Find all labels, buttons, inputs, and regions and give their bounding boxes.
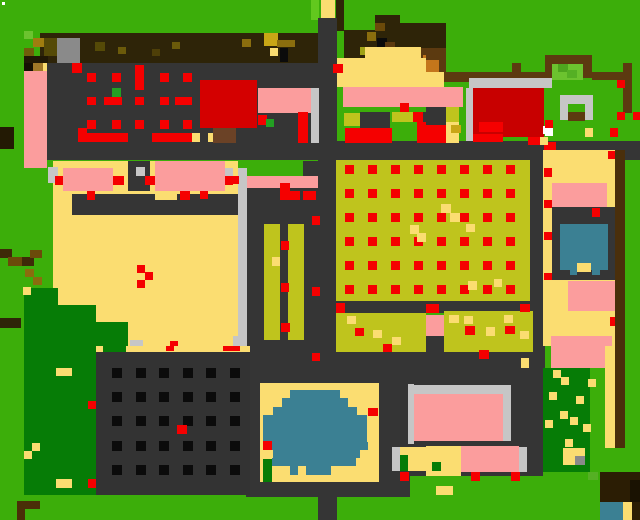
gold-pixel xyxy=(118,47,126,54)
market-dot xyxy=(87,120,96,129)
sand-notch xyxy=(577,263,591,272)
item-red xyxy=(465,326,475,335)
crop-berry xyxy=(391,261,400,270)
item-red xyxy=(368,408,378,416)
forest-west xyxy=(78,315,96,352)
crop-berry xyxy=(483,261,492,270)
crop-berry xyxy=(414,261,423,270)
gold-pixel xyxy=(33,63,43,71)
crop-berry xyxy=(483,189,492,198)
market-dot xyxy=(87,73,96,82)
crop-berry xyxy=(506,237,515,246)
arch-door xyxy=(568,112,585,121)
light-grass-pixel xyxy=(588,472,598,480)
wood-corner-sw xyxy=(17,501,40,509)
item-red xyxy=(413,112,423,122)
road-patch xyxy=(426,336,444,346)
pond-west-water xyxy=(273,450,360,458)
grass-south xyxy=(337,497,640,520)
crop-berry xyxy=(506,285,515,294)
building-frame xyxy=(414,385,511,394)
item-red xyxy=(281,283,289,292)
lot-dot xyxy=(230,416,240,426)
crop-berry xyxy=(345,165,354,174)
water-pixel xyxy=(570,268,577,275)
water-pixel xyxy=(592,268,600,275)
crop-berry xyxy=(391,237,400,246)
sand-north xyxy=(365,47,421,58)
item-red xyxy=(383,344,392,352)
red-column xyxy=(298,112,308,143)
dirt-bar-west xyxy=(0,318,21,328)
sand-speckle xyxy=(520,331,529,339)
item-red xyxy=(166,346,174,351)
road-patch xyxy=(360,112,390,128)
sand-speckle xyxy=(494,279,502,287)
pink-shed xyxy=(426,315,444,336)
sand-notch xyxy=(155,194,177,200)
lot-dot xyxy=(159,441,169,451)
sand-speckle xyxy=(486,327,495,336)
stone-column xyxy=(311,88,319,143)
item-red xyxy=(290,191,300,200)
lot-dot xyxy=(206,441,216,451)
item-red xyxy=(479,350,489,359)
crop-berry xyxy=(506,189,515,198)
item-red xyxy=(230,176,239,184)
item-red xyxy=(505,326,515,334)
item-red xyxy=(544,168,552,177)
item-red xyxy=(610,128,618,137)
crop-berry xyxy=(437,189,446,198)
forest-west xyxy=(96,322,128,346)
sand-speckle xyxy=(504,315,513,323)
crop-berry xyxy=(414,165,423,174)
lot-dot xyxy=(136,416,146,426)
grass-south xyxy=(0,497,318,520)
sand-pixel xyxy=(32,443,40,451)
crop-berry xyxy=(368,261,377,270)
sand-column-east xyxy=(605,346,615,448)
lot-dot xyxy=(159,416,169,426)
olive-block xyxy=(392,112,414,122)
sand-pixel xyxy=(24,451,32,459)
market-dot xyxy=(160,120,169,129)
pink-pixel xyxy=(40,161,47,168)
item-red xyxy=(544,200,552,208)
sand-pixel xyxy=(272,257,280,266)
item-red xyxy=(592,208,600,217)
lot-dot xyxy=(206,368,216,378)
crop-berry xyxy=(437,213,446,222)
crop-berry xyxy=(506,261,515,270)
item-red xyxy=(177,425,187,434)
building-frame xyxy=(503,393,511,441)
item-red xyxy=(72,63,82,73)
grass-pixel xyxy=(24,31,33,39)
dock-brown xyxy=(632,502,640,520)
crop-berry xyxy=(483,213,492,222)
lot-dot xyxy=(112,392,122,402)
lot-dot xyxy=(183,465,193,475)
item-red xyxy=(617,80,625,88)
sand-pixel xyxy=(270,48,278,56)
gold-pixel xyxy=(152,49,160,56)
pond-west-water xyxy=(265,442,368,450)
item-red xyxy=(281,323,290,332)
stone-pixel xyxy=(225,168,233,176)
pond-west-water xyxy=(263,415,367,442)
black-pixel xyxy=(280,48,288,62)
item-red xyxy=(333,64,343,73)
pond-west-water xyxy=(290,390,340,398)
market-building-red xyxy=(200,80,257,128)
sand-speckle xyxy=(565,439,573,447)
crop-strip xyxy=(264,224,280,340)
lot-dot xyxy=(206,416,216,426)
crop-berry xyxy=(391,165,400,174)
item-red xyxy=(545,120,553,128)
market-dot xyxy=(87,97,96,105)
sand-speckle xyxy=(588,379,596,387)
gold-pixel xyxy=(95,42,105,51)
building-pink-large xyxy=(414,394,503,441)
crop-berry xyxy=(368,189,377,198)
path-brown xyxy=(623,63,632,113)
item-red xyxy=(520,304,530,312)
sand-speckle xyxy=(466,224,475,232)
market-dot xyxy=(112,120,121,129)
brown-pixel xyxy=(375,23,385,31)
crop-berry xyxy=(391,189,400,198)
pond-west-water xyxy=(282,398,348,407)
item-red xyxy=(145,272,153,280)
crop-berry xyxy=(391,213,400,222)
crop-berry xyxy=(368,237,377,246)
crop-berry xyxy=(437,285,446,294)
market-dot xyxy=(112,73,121,82)
gold-pixel xyxy=(242,39,251,47)
sand-patch xyxy=(426,72,444,87)
plant-green xyxy=(263,459,272,482)
gold-pixel xyxy=(451,125,461,133)
item-red xyxy=(180,191,190,200)
item-green xyxy=(266,119,274,127)
lot-dot xyxy=(230,465,240,475)
building-pink-east xyxy=(552,183,607,207)
sand-speckle xyxy=(576,396,584,404)
sand-pixel xyxy=(192,133,200,142)
red-stall xyxy=(426,125,446,143)
dark-block-west xyxy=(0,127,14,149)
item-red xyxy=(400,103,409,112)
sand-speckle xyxy=(549,392,557,400)
sand-speckle xyxy=(392,337,401,345)
market-dot xyxy=(135,97,144,105)
dirt-pole xyxy=(336,0,344,31)
market-dot-tall xyxy=(135,65,144,90)
sand-speckle xyxy=(373,330,382,338)
water-pixel xyxy=(272,458,281,466)
item-red xyxy=(263,441,272,450)
lot-dot xyxy=(206,465,216,475)
stall-frame xyxy=(519,447,527,472)
crop-berry xyxy=(460,213,469,222)
crop-berry xyxy=(345,213,354,222)
item-red xyxy=(113,176,124,185)
sand-north xyxy=(336,58,426,87)
crop-berry xyxy=(460,165,469,174)
sand-speckle xyxy=(449,315,459,323)
item-red xyxy=(87,191,95,200)
olive-block xyxy=(446,107,459,122)
pond-west-water xyxy=(278,458,356,466)
market-bar xyxy=(175,97,192,105)
road-patch xyxy=(426,107,446,125)
plant-green xyxy=(400,455,408,471)
crop-berry xyxy=(345,261,354,270)
item-green xyxy=(112,88,121,97)
crop-berry xyxy=(414,213,423,222)
lot-dot xyxy=(136,392,146,402)
item-red xyxy=(200,191,208,199)
lot-dot xyxy=(112,416,122,426)
red-stall xyxy=(345,128,362,143)
stone-arch xyxy=(560,95,593,104)
brown-crate xyxy=(213,128,236,143)
crop-berry xyxy=(414,189,423,198)
crop-berry xyxy=(460,237,469,246)
stone-arch xyxy=(585,104,593,120)
game-map-canvas[interactable] xyxy=(0,0,640,520)
crop-berry xyxy=(483,285,492,294)
sand-speckle xyxy=(468,281,477,290)
gold-block xyxy=(264,33,278,46)
orange-block xyxy=(426,60,439,72)
gray-block xyxy=(57,38,80,63)
lot-dot xyxy=(183,368,193,378)
sand-speckle xyxy=(464,316,473,324)
lot-dot xyxy=(112,441,122,451)
stone-path xyxy=(520,80,552,88)
white-marker xyxy=(2,2,5,5)
market-bar xyxy=(104,97,122,105)
lot-dot xyxy=(159,392,169,402)
gold-pixel xyxy=(33,38,44,47)
pond-west-water xyxy=(273,407,357,415)
item-red xyxy=(145,176,155,185)
sand-speckle xyxy=(570,417,578,425)
building-pink xyxy=(63,168,113,191)
dock-sand xyxy=(623,502,632,520)
crop-berry xyxy=(506,213,515,222)
twig-brown xyxy=(8,257,22,266)
lot-dot xyxy=(112,368,122,378)
crop-berry xyxy=(483,165,492,174)
lot-dot xyxy=(159,368,169,378)
sand-pixel xyxy=(585,128,593,137)
building-pink-west xyxy=(24,71,47,168)
market-dot xyxy=(135,120,144,129)
crop-berry xyxy=(345,189,354,198)
crop-berry xyxy=(391,285,400,294)
gold-pixel xyxy=(367,32,376,41)
item-red xyxy=(55,176,63,185)
market-dot xyxy=(183,73,192,82)
sand-bar xyxy=(56,479,72,488)
dock-dark xyxy=(630,480,640,503)
dock-water xyxy=(600,502,623,520)
sand-pixel xyxy=(23,287,31,295)
building-pink xyxy=(551,336,612,368)
sand-speckle xyxy=(583,424,591,432)
gold-pixel xyxy=(33,277,42,285)
lot-dot xyxy=(136,465,146,475)
item-red xyxy=(617,112,625,120)
item-red xyxy=(544,232,552,240)
stall-yellow xyxy=(426,446,461,476)
crop-berry xyxy=(437,165,446,174)
lot-dot xyxy=(112,465,122,475)
crop-berry xyxy=(437,237,446,246)
red-stall xyxy=(362,128,392,143)
red-bar xyxy=(78,128,87,142)
hedge-shade xyxy=(567,70,577,78)
item-red xyxy=(303,191,316,200)
sand-speckle xyxy=(347,316,356,324)
item-red xyxy=(280,183,290,200)
gold-pixel xyxy=(25,269,34,277)
market-dot xyxy=(183,120,192,129)
lot-dot xyxy=(230,392,240,402)
crop-berry xyxy=(345,285,354,294)
lot-dot xyxy=(136,441,146,451)
stall-pink xyxy=(461,446,519,472)
item-red xyxy=(137,265,145,273)
stone-arch xyxy=(560,104,568,120)
item-red xyxy=(137,280,145,288)
item-red xyxy=(471,472,480,481)
item-red xyxy=(336,303,345,313)
twig-brown xyxy=(30,250,42,258)
sand-speckle xyxy=(560,411,568,419)
item-red xyxy=(511,472,520,481)
crop-berry xyxy=(460,189,469,198)
crop-berry xyxy=(460,261,469,270)
building-pink xyxy=(568,281,616,311)
plant-green xyxy=(432,462,441,471)
item-red xyxy=(312,353,320,361)
crop-berry xyxy=(414,285,423,294)
stall-frame xyxy=(392,447,400,471)
pond-west-water xyxy=(306,466,331,475)
wood-corner-sw xyxy=(17,509,25,520)
red-detail xyxy=(479,122,503,132)
pond-west-water xyxy=(290,466,298,475)
lot-dot xyxy=(230,441,240,451)
building-pink xyxy=(155,161,225,191)
sand-pixel xyxy=(540,137,548,145)
red-bar xyxy=(87,133,128,142)
red-bar xyxy=(152,133,192,142)
item-red xyxy=(633,112,640,120)
crop-berry xyxy=(506,165,515,174)
olive-block xyxy=(344,113,361,126)
lot-dot xyxy=(183,441,193,451)
path-brown xyxy=(426,50,444,60)
sand-pixel xyxy=(521,358,529,368)
sand-speckle xyxy=(417,233,426,242)
item-red xyxy=(400,472,409,481)
sand-bar xyxy=(56,368,72,376)
building-pink xyxy=(258,88,311,113)
wood-fence-east xyxy=(615,150,625,448)
crop-berry xyxy=(368,285,377,294)
lot-dot xyxy=(206,392,216,402)
item-red xyxy=(281,241,289,250)
crop-berry xyxy=(368,165,377,174)
sand-speckle xyxy=(553,370,561,378)
gold-pixel xyxy=(277,40,295,47)
item-red xyxy=(312,287,320,296)
item-red xyxy=(223,346,240,351)
lot-dot xyxy=(183,392,193,402)
red-detail xyxy=(473,134,503,142)
lot-dot xyxy=(230,368,240,378)
crop-berry xyxy=(483,237,492,246)
lot-dot xyxy=(159,465,169,475)
crop-strip xyxy=(288,224,304,340)
light-grass-stripe xyxy=(311,0,319,20)
gold-pixel xyxy=(24,48,34,56)
sand-pixel xyxy=(436,486,453,495)
lot-dot xyxy=(136,368,146,378)
white-pixel xyxy=(545,128,553,136)
market-dot xyxy=(160,97,169,105)
gray-pixel xyxy=(575,456,585,465)
crop-berry xyxy=(345,237,354,246)
sand-speckle xyxy=(450,213,460,222)
path-brown xyxy=(583,63,592,78)
item-red xyxy=(312,216,320,225)
twig-brown xyxy=(22,257,34,266)
stone-path xyxy=(466,88,473,143)
item-red xyxy=(426,304,439,313)
gold-pixel xyxy=(172,42,180,49)
crop-berry xyxy=(437,261,446,270)
stone-pixel xyxy=(136,167,145,176)
market-dot xyxy=(160,73,169,82)
sand-speckle xyxy=(545,420,553,428)
crop-berry xyxy=(368,213,377,222)
stone-pixel xyxy=(233,336,243,346)
item-red xyxy=(355,328,364,336)
sand-speckle xyxy=(441,204,451,213)
stone-stripe xyxy=(238,168,247,346)
sand-speckle xyxy=(561,377,569,385)
